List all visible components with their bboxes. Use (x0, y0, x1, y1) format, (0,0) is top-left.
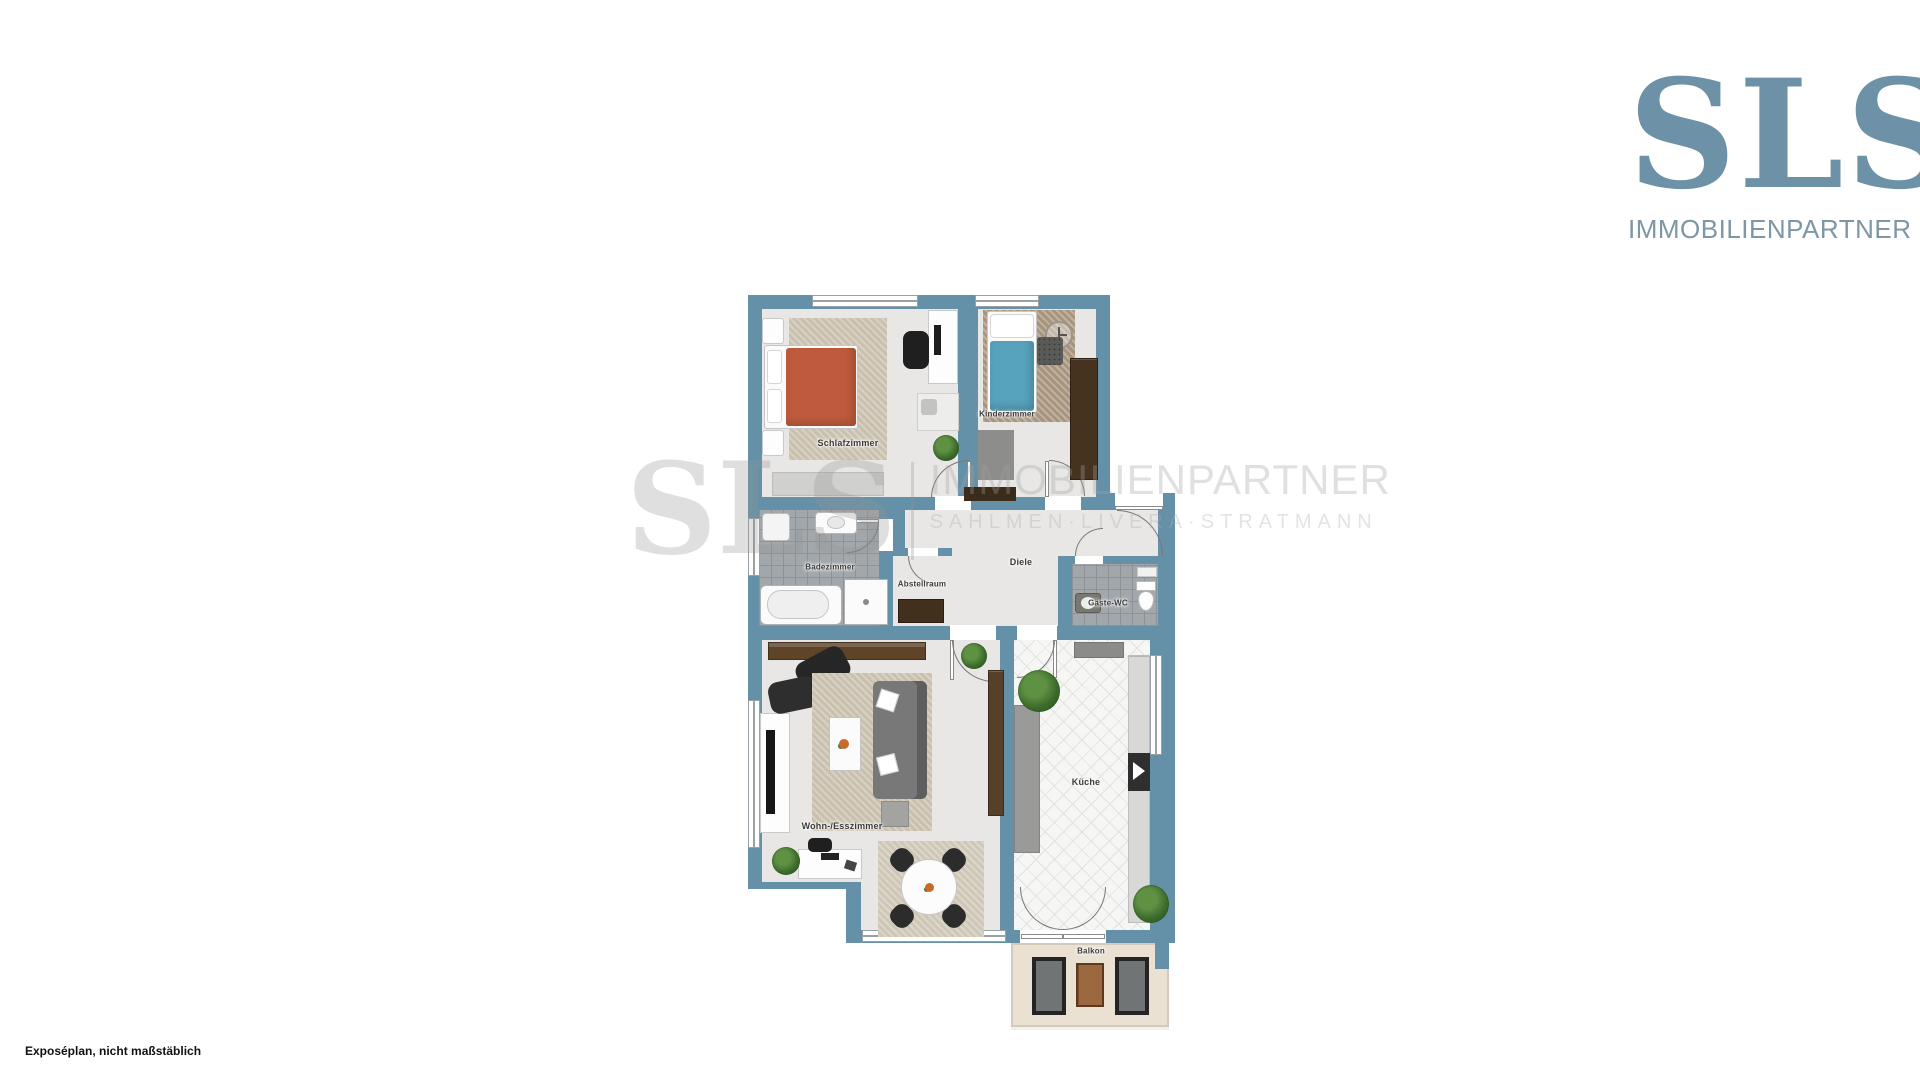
beanbag (1037, 337, 1063, 365)
bed-blanket (786, 348, 856, 426)
bath-sink-basin (827, 516, 845, 529)
window-badezimmer (748, 518, 760, 576)
plant (1018, 670, 1060, 712)
bed-pillow (990, 314, 1034, 338)
badezimmer-door-gap (879, 519, 893, 551)
play-mat (978, 430, 1014, 480)
room-label-kueche: Küche (1072, 777, 1101, 787)
floor-plan: Schlafzimmer Kinderzimmer Badezimmer Abs… (745, 293, 1177, 1043)
lounge-chair (1115, 957, 1149, 1015)
fruit-bowl (839, 739, 849, 749)
kitchen-counter-left (1014, 705, 1040, 853)
sideboard (768, 642, 926, 660)
balkon-door-leaf-right (1063, 934, 1105, 939)
shower-drain (863, 599, 869, 605)
storage-cabinet (898, 599, 944, 623)
entry-door-gap (1115, 493, 1163, 506)
window-kueche-right (1150, 655, 1162, 755)
bed-pillow (767, 350, 782, 384)
bathtub-inner (767, 590, 829, 619)
tv-lowboard (760, 713, 790, 833)
dresser (772, 472, 884, 496)
bench (964, 487, 1016, 501)
sofa-side-table (881, 801, 909, 827)
room-label-diele: Diele (1010, 557, 1033, 567)
work-chair (808, 838, 832, 852)
outline-notch (748, 889, 846, 943)
tv (766, 730, 775, 814)
wohnzimmer-door-gap (950, 625, 996, 640)
desk (928, 310, 958, 384)
balkon-wall-right (1155, 943, 1169, 969)
stove-triangle (1133, 762, 1145, 780)
desk-monitor (934, 325, 941, 355)
footer-note: Exposéplan, nicht maßstäblich (25, 1044, 201, 1058)
page: { "logo": { "text": "SLS", "subtitle": "… (0, 0, 1920, 1080)
room-label-gaeste-wc: Gäste-WC (1088, 599, 1128, 608)
logo-text: SLS (1628, 60, 1894, 210)
nightstand (762, 430, 784, 456)
desk-chair (903, 331, 929, 369)
balkon-table (1076, 963, 1104, 1007)
gaeste-wc-wall-h (1058, 556, 1158, 564)
work-monitor (821, 853, 839, 860)
fruit-bowl (925, 883, 934, 892)
kueche-door-gap (1017, 625, 1057, 640)
nightstand (762, 318, 784, 344)
window-kinderzimmer (975, 295, 1039, 307)
balkon-door-leaf-left (1021, 934, 1063, 939)
bed-pillow (767, 389, 782, 423)
room-label-wohn-esszimmer: Wohn-/Esszimmer (802, 821, 883, 831)
plant (1133, 885, 1169, 923)
window-wohnzimmer-left (748, 700, 760, 848)
gaeste-wc-wall-v (1058, 556, 1072, 626)
room-label-kinderzimmer: Kinderzimmer (979, 410, 1035, 419)
bookshelf (988, 670, 1004, 816)
wardrobe (1070, 358, 1098, 480)
bed-blanket-blue (990, 341, 1034, 411)
window-schlafzimmer (812, 295, 918, 307)
room-label-schlafzimmer: Schlafzimmer (818, 438, 879, 448)
wc-shelf (1137, 567, 1157, 577)
gaeste-wc-door-gap (1075, 556, 1103, 564)
toilet-tank (1136, 581, 1156, 591)
washing-machine (762, 513, 790, 541)
room-label-abstellraum: Abstellraum (898, 580, 946, 589)
lounge-chair (1032, 957, 1066, 1015)
side-chair (921, 399, 937, 415)
clock-hand (1059, 334, 1067, 336)
room-label-badezimmer: Badezimmer (805, 563, 855, 572)
kinderzimmer-door-gap (1045, 496, 1081, 510)
room-label-balkon: Balkon (1077, 947, 1105, 956)
abstellraum-door-gap (908, 548, 938, 556)
logo-subtitle: IMMOBILIENPARTNER (1628, 214, 1894, 245)
company-logo: SLS IMMOBILIENPARTNER (1628, 60, 1894, 245)
plant (961, 643, 987, 669)
plant (933, 435, 959, 461)
kitchen-counter-top (1074, 642, 1124, 658)
plant (772, 847, 800, 875)
